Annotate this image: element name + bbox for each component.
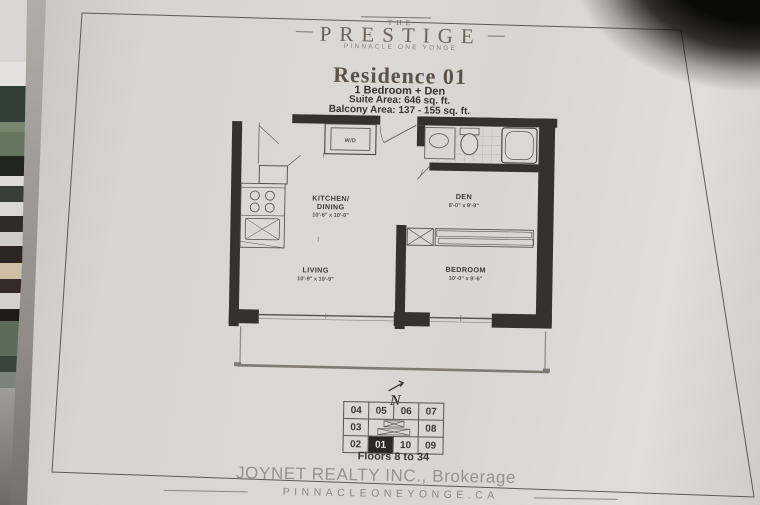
laundry-closet: W/D [325, 124, 377, 155]
keyplan-unit-08: 08 [419, 420, 444, 437]
photo-backdrop: THE PRESTIGE PINNACLE ONE YONGE Residenc… [0, 0, 760, 505]
room-dims-den: 8'-0" x 9'-9" [449, 203, 480, 210]
room-label-bedroom: BEDROOM [445, 265, 485, 275]
room-dims-kitchen: 10'-6" x 10'-0" [312, 212, 349, 219]
room-label-kitchen-2: DINING [317, 202, 345, 211]
room-dims-living: 10'-9" x 10'-9" [297, 276, 334, 283]
keyplan-unit-03: 03 [344, 419, 369, 436]
room-dims-bedroom: 10'-0" x 9'-6" [449, 276, 483, 283]
kitchen-fixtures [240, 154, 301, 248]
balcony-railing [234, 326, 551, 373]
keyplan-unit-07: 07 [419, 403, 444, 420]
keyplan-elevator-core [369, 419, 419, 437]
keyplan-unit-06: 06 [394, 403, 419, 420]
keyplan-unit-05: 05 [369, 402, 394, 419]
printed-content: THE PRESTIGE PINNACLE ONE YONGE Residenc… [0, 0, 760, 505]
keyplan-grid: 04 05 06 07 03 08 02 01 10 09 [342, 401, 444, 455]
balcony-windows [259, 312, 492, 323]
bedroom-closet [407, 228, 534, 247]
keyplan-unit-04: 04 [344, 402, 369, 419]
room-label-living: LIVING [302, 265, 329, 274]
room-labels: KITCHEN/ DINING 10'-6" x 10'-0" DEN 8'-0… [297, 189, 487, 285]
laundry-label: W/D [345, 138, 357, 144]
room-label-den: DEN [456, 192, 473, 201]
bathroom-fixtures [417, 126, 537, 181]
elevator-core-icon [369, 419, 417, 436]
floorplan-drawing: W/D [213, 113, 578, 387]
